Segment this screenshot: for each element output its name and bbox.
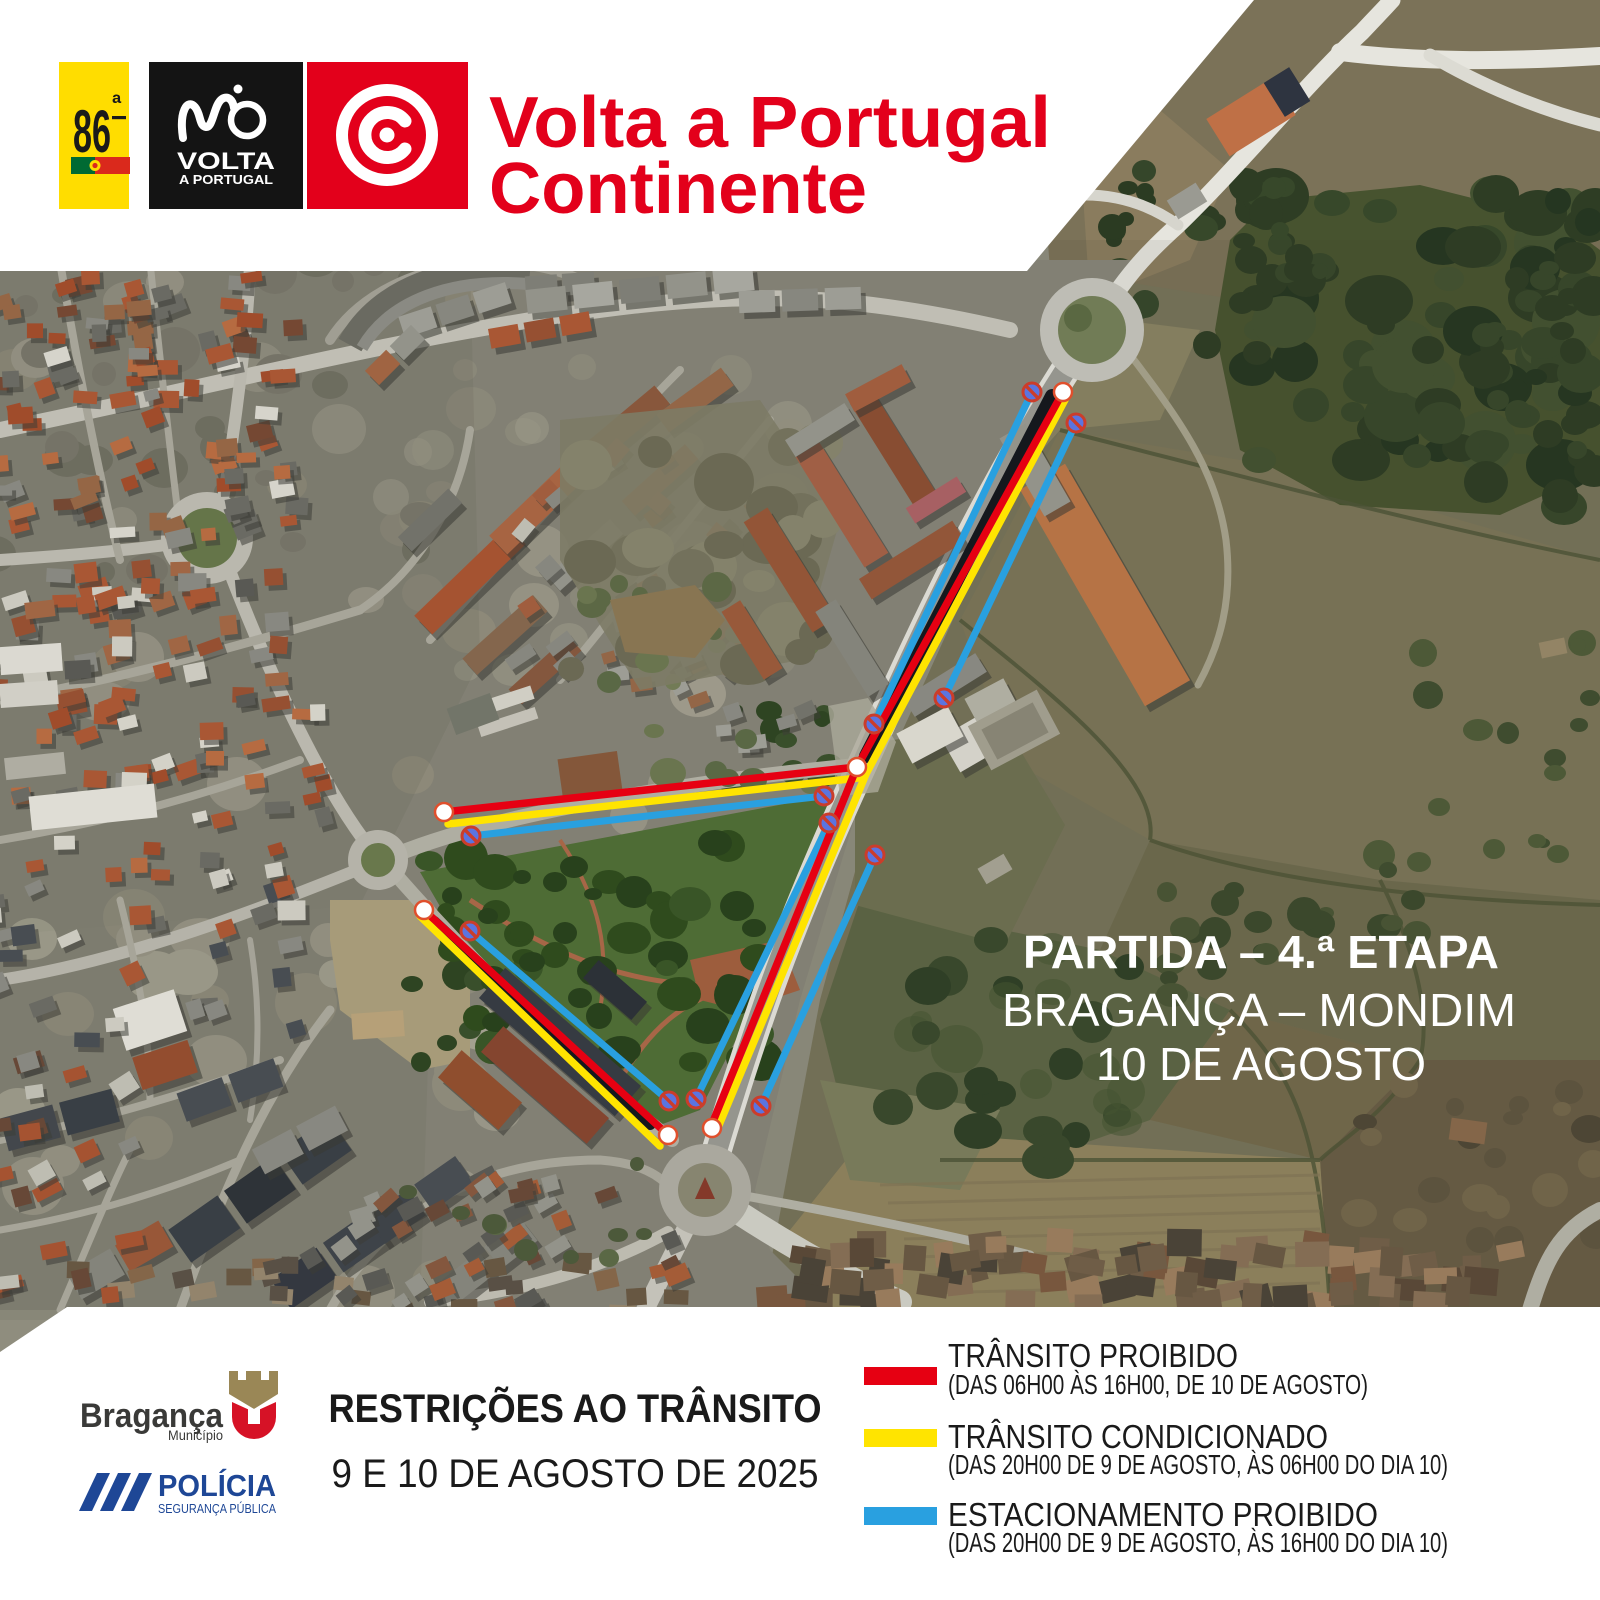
svg-text:9 E 10 DE AGOSTO DE 2025: 9 E 10 DE AGOSTO DE 2025 bbox=[332, 1452, 819, 1496]
svg-text:Continente: Continente bbox=[489, 149, 867, 229]
svg-text:PARTIDA – 4.ª ETAPA: PARTIDA – 4.ª ETAPA bbox=[1023, 926, 1499, 978]
svg-text:(DAS 20H00 DE 9 DE AGOSTO, ÀS: (DAS 20H00 DE 9 DE AGOSTO, ÀS 16H00 DO D… bbox=[948, 1527, 1448, 1558]
svg-text:ª: ª bbox=[112, 90, 122, 118]
svg-text:POLÍCIA: POLÍCIA bbox=[158, 1468, 276, 1503]
svg-text:10 DE AGOSTO: 10 DE AGOSTO bbox=[1096, 1038, 1426, 1090]
svg-text:VOLTA: VOLTA bbox=[177, 148, 275, 175]
svg-text:A PORTUGAL: A PORTUGAL bbox=[179, 173, 273, 187]
svg-text:SEGURANÇA PÚBLICA: SEGURANÇA PÚBLICA bbox=[158, 1501, 276, 1516]
svg-text:BRAGANÇA – MONDIM: BRAGANÇA – MONDIM bbox=[1002, 984, 1516, 1036]
svg-text:Município: Município bbox=[168, 1427, 223, 1443]
svg-text:(DAS 06H00 ÀS 16H00, DE 10 DE: (DAS 06H00 ÀS 16H00, DE 10 DE AGOSTO) bbox=[948, 1369, 1368, 1400]
svg-text:RESTRIÇÕES AO TRÂNSITO: RESTRIÇÕES AO TRÂNSITO bbox=[329, 1385, 822, 1431]
svg-text:86: 86 bbox=[73, 98, 111, 165]
svg-text:(DAS 20H00 DE 9 DE AGOSTO, ÀS: (DAS 20H00 DE 9 DE AGOSTO, ÀS 06H00 DO D… bbox=[948, 1449, 1448, 1480]
